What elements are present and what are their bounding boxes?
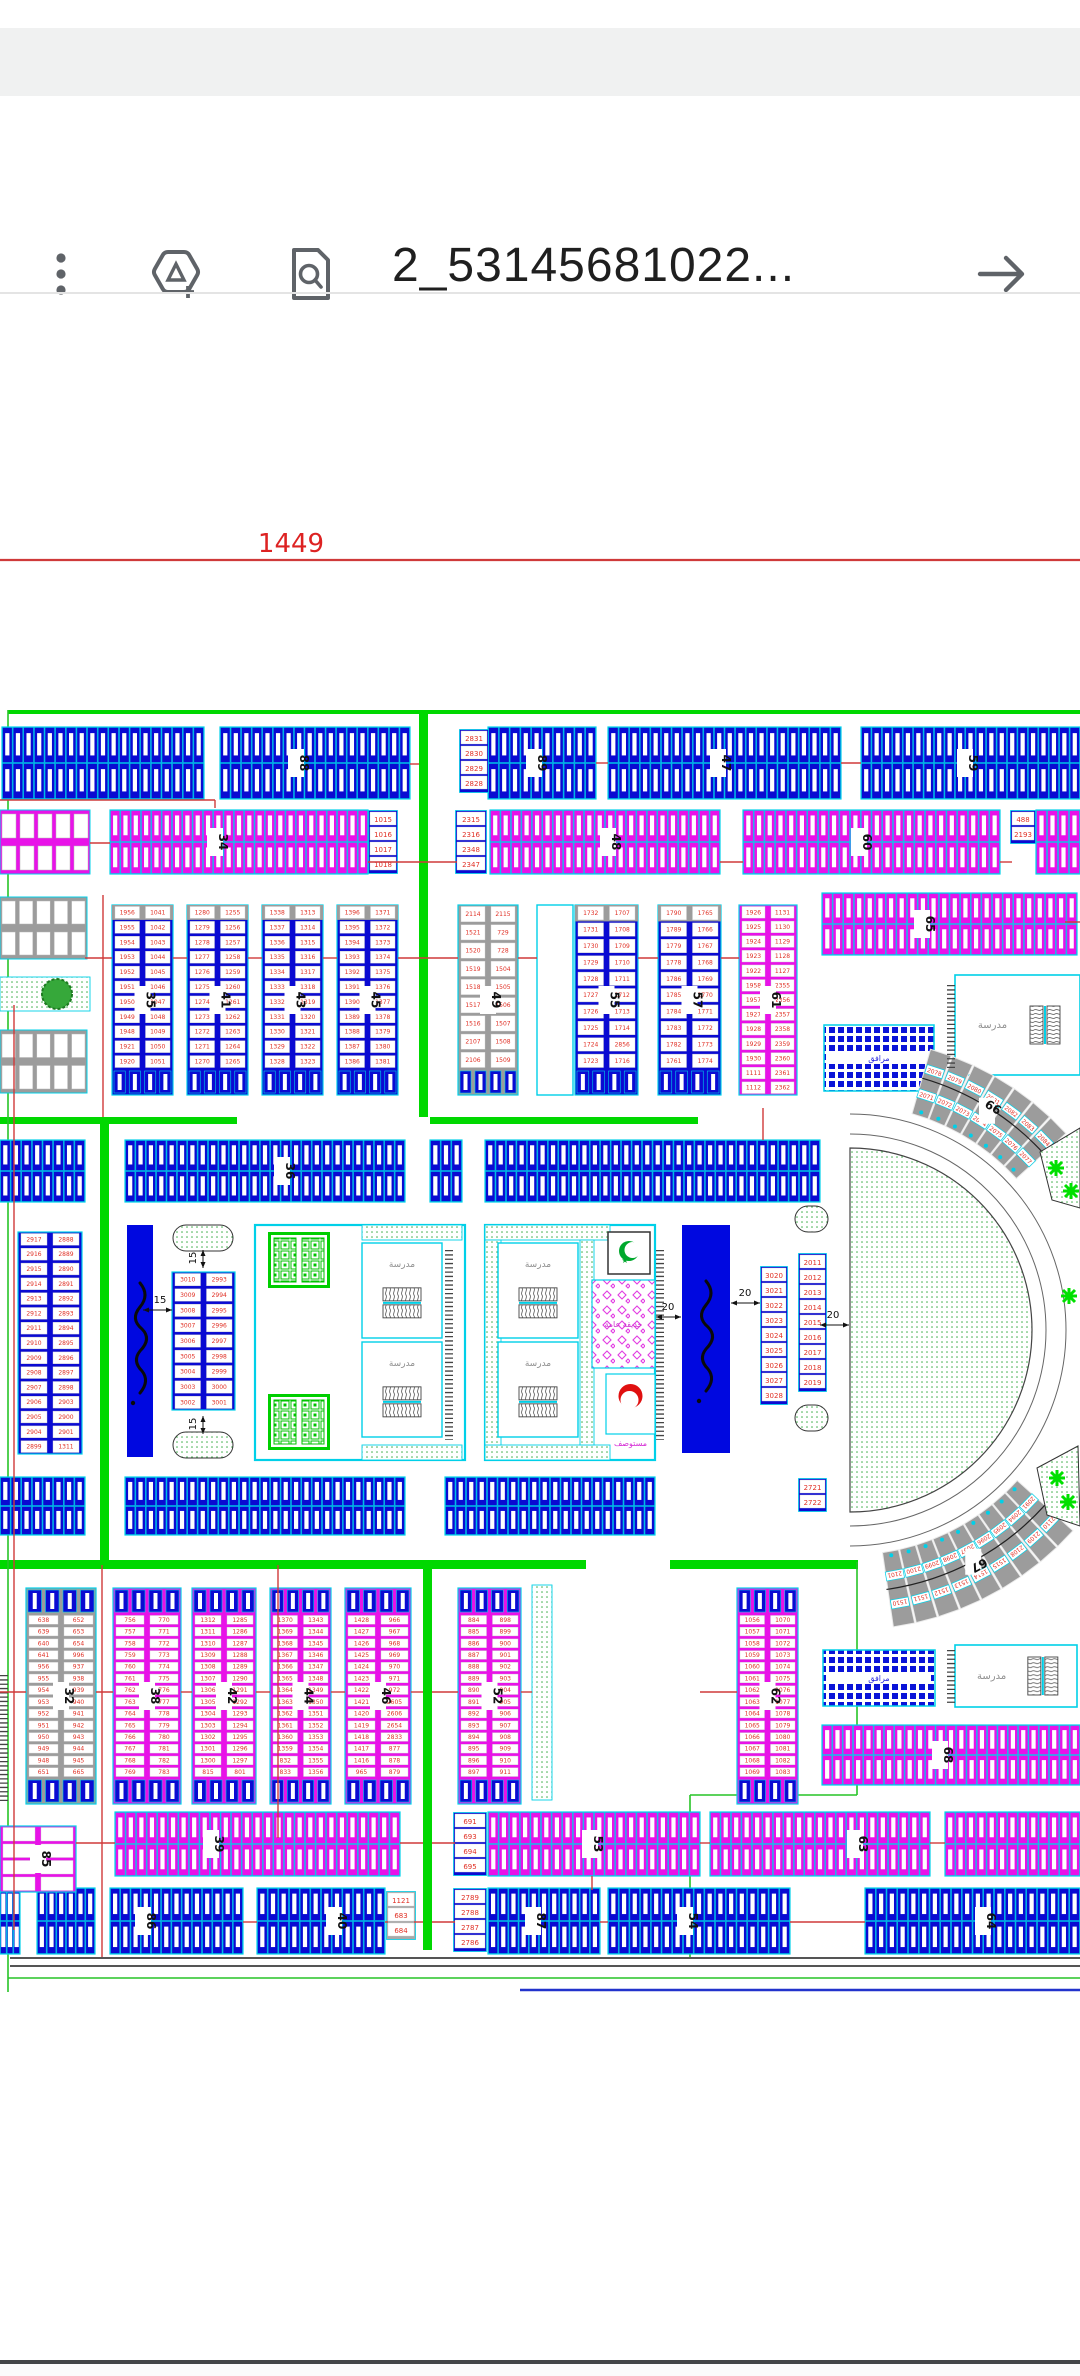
lot-tag xyxy=(535,847,539,867)
lot-tag xyxy=(870,1817,874,1837)
lot-tag xyxy=(287,1849,291,1869)
lot-tag xyxy=(185,1894,189,1914)
tile-column: 2315231623482347 xyxy=(456,811,487,874)
block-number: 53 xyxy=(591,1836,605,1853)
lot-tag xyxy=(384,1593,388,1609)
lot-number: 772 xyxy=(158,1640,170,1647)
lot-tag xyxy=(392,733,396,755)
lot-tag xyxy=(491,733,495,755)
lot-number: 1955 xyxy=(120,924,135,931)
lot-tag xyxy=(315,1145,319,1164)
lot-tag xyxy=(1062,769,1066,791)
lot-number: 1767 xyxy=(698,943,713,950)
plot-strip xyxy=(0,1477,85,1535)
lot-tag xyxy=(335,1511,339,1529)
lot-tag xyxy=(802,769,806,791)
lot-tag xyxy=(502,733,506,755)
lot-tag xyxy=(128,1145,132,1164)
lot-number: 1727 xyxy=(583,992,598,999)
plot-block: 8848988858998869008879018889028899038909… xyxy=(458,1588,521,1804)
lot-tag xyxy=(1073,1849,1077,1869)
plot-strip: 68 xyxy=(822,1725,1080,1785)
lot-tag xyxy=(1048,929,1052,948)
lot-tag xyxy=(154,1894,158,1914)
lot-tag xyxy=(308,1817,312,1837)
lot-number: 766 xyxy=(124,1734,136,1741)
lot-tag xyxy=(211,1176,215,1195)
lot-number: 1280 xyxy=(195,909,210,916)
lot-tag xyxy=(997,1927,1001,1947)
lot-number: 889 xyxy=(468,1675,480,1682)
lot-tag xyxy=(566,815,570,835)
lot-tag xyxy=(681,847,685,867)
lot-tag xyxy=(718,1894,722,1914)
lot-number: 967 xyxy=(389,1629,401,1636)
lot-tag xyxy=(572,1176,576,1195)
lot-tag xyxy=(969,1849,973,1869)
lot-number: 907 xyxy=(500,1722,512,1729)
lot-number: 1920 xyxy=(120,1059,135,1066)
lot-number: 2907 xyxy=(26,1384,41,1391)
lot-number: 1041 xyxy=(150,909,165,916)
lot-number: 1265 xyxy=(225,1059,240,1066)
lot-number: 1380 xyxy=(375,1044,390,1051)
lot-tag xyxy=(611,1927,615,1947)
lot-tag xyxy=(618,1849,622,1869)
lot-number: 1112 xyxy=(746,1085,761,1092)
lot-tag xyxy=(907,815,911,835)
school-block: مدرسة xyxy=(362,1243,442,1338)
lot-tag xyxy=(729,1894,733,1914)
lot-tag xyxy=(491,769,495,791)
lot-number: 895 xyxy=(468,1746,480,1753)
lot-number: 694 xyxy=(463,1848,477,1856)
lot-tag xyxy=(954,1927,958,1947)
lot-number: 1708 xyxy=(615,927,630,934)
lot-tag xyxy=(593,1894,597,1914)
lot-tag xyxy=(828,1817,832,1837)
lot-number: 971 xyxy=(389,1675,401,1682)
lot-number: 1929 xyxy=(746,1041,761,1048)
lot-tag xyxy=(1062,1760,1066,1779)
lot-tag xyxy=(1031,1760,1035,1779)
lot-tag xyxy=(750,1176,754,1195)
lot-number: 1425 xyxy=(354,1652,369,1659)
lot-number: 779 xyxy=(158,1722,170,1729)
lot-tag xyxy=(1,1927,5,1947)
lot-number: 2355 xyxy=(775,982,790,989)
lot-tag xyxy=(885,733,889,755)
lot-tag xyxy=(403,769,407,791)
rect xyxy=(383,1305,421,1318)
lot-tag xyxy=(398,1482,402,1500)
lot-tag xyxy=(889,929,893,948)
lot-tag xyxy=(223,1074,227,1090)
lot-tag xyxy=(877,1760,881,1779)
lot-tag xyxy=(308,1849,312,1869)
lot-tag xyxy=(258,847,262,867)
school-label: مدرسة xyxy=(525,1260,551,1270)
lot-number: 1313 xyxy=(300,909,315,916)
lot-tag xyxy=(990,1849,994,1869)
plot-block: 1056107010571071105810721059107310601074… xyxy=(737,1588,798,1804)
lot-number: 1371 xyxy=(375,909,390,916)
lot-number: 1395 xyxy=(345,924,360,931)
lot-tag xyxy=(1010,733,1014,755)
lot-number: 1286 xyxy=(232,1629,247,1636)
lot-tag xyxy=(464,1783,468,1799)
block-number: 38 xyxy=(148,1688,162,1705)
lot-tag xyxy=(556,769,560,791)
clinic-label: مستوصف xyxy=(614,1439,647,1448)
lot-tag xyxy=(963,929,967,948)
lot-number: 1773 xyxy=(698,1041,713,1048)
lot-tag xyxy=(1052,1817,1056,1837)
lot-number: 1343 xyxy=(308,1617,323,1624)
plot-strip xyxy=(2,727,204,799)
lot-number: 900 xyxy=(500,1640,512,1647)
lot-number: 1952 xyxy=(120,969,135,976)
lot-tag xyxy=(329,1849,333,1869)
lot-number: 1311 xyxy=(58,1444,73,1451)
utilities-block: مرافق xyxy=(824,1025,934,1091)
street-blue xyxy=(682,1225,730,1453)
lot-tag xyxy=(361,1849,365,1869)
lot-tag xyxy=(665,1927,669,1947)
lot-tag xyxy=(226,1927,230,1947)
green-street xyxy=(0,1560,586,1569)
lot-number: 943 xyxy=(73,1734,85,1741)
forward-button[interactable] xyxy=(970,242,1034,306)
lot-number: 1257 xyxy=(225,939,240,946)
curb-mark xyxy=(953,1124,957,1128)
lot-tag xyxy=(335,1482,339,1500)
lot-tag xyxy=(134,815,138,835)
lot-number: 2789 xyxy=(461,1894,479,1902)
lot-tag xyxy=(350,1817,354,1837)
lot-number: 1075 xyxy=(775,1675,790,1682)
lot-tag xyxy=(509,1176,513,1195)
lot-tag xyxy=(387,1176,391,1195)
lot-number: 1059 xyxy=(745,1652,760,1659)
lot-tag xyxy=(916,769,920,791)
lot-tag xyxy=(818,1849,822,1869)
lot-number: 1508 xyxy=(495,1039,510,1046)
lot-tag xyxy=(160,1817,164,1837)
lot-tag xyxy=(632,733,636,755)
lot-tag xyxy=(773,1783,777,1799)
curb-mark xyxy=(971,1521,975,1525)
lot-tag xyxy=(1073,1730,1077,1749)
lot-number: 2898 xyxy=(58,1384,73,1391)
lot-tag xyxy=(144,847,148,867)
lot-number: 1374 xyxy=(375,954,390,961)
lot-number: 1949 xyxy=(120,1014,135,1021)
lot-tag xyxy=(993,815,997,835)
lot-tag xyxy=(180,1176,184,1195)
lot-tag xyxy=(589,769,593,791)
lot-number: 1270 xyxy=(195,1059,210,1066)
lot-tag xyxy=(766,1849,770,1869)
lot-number: 1375 xyxy=(375,969,390,976)
lot-tag xyxy=(818,1817,822,1837)
lot-tag xyxy=(113,815,117,835)
lot-tag xyxy=(501,1511,505,1529)
lot-number: 1293 xyxy=(232,1711,247,1718)
lot-tag xyxy=(922,1894,926,1914)
lot-number: 729 xyxy=(497,929,509,936)
lot-tag xyxy=(128,1176,132,1195)
lot-tag xyxy=(3,1511,7,1529)
lot-tag xyxy=(875,733,879,755)
lot-tag xyxy=(776,1817,780,1837)
tile-column: 302030213022302330243025302630273028 xyxy=(761,1267,788,1405)
lot-number: 651 xyxy=(38,1769,50,1776)
lot-tag xyxy=(639,847,643,867)
dotted-green-band xyxy=(532,1585,552,1800)
lot-tag xyxy=(792,1145,796,1164)
lot-tag xyxy=(734,1849,738,1869)
lot-tag xyxy=(40,1927,44,1947)
lot-tag xyxy=(791,733,795,755)
lot-number: 1427 xyxy=(354,1629,369,1636)
school-building-symbol xyxy=(383,1288,421,1318)
lot-tag xyxy=(628,1074,632,1090)
lot-tag xyxy=(190,1145,194,1164)
lot-number: 1766 xyxy=(698,927,713,934)
lot-number: 3027 xyxy=(765,1377,783,1385)
lot-tag xyxy=(1000,1817,1004,1837)
lot-tag xyxy=(632,769,636,791)
lot-number: 1419 xyxy=(354,1722,369,1729)
lot-tag xyxy=(512,1817,516,1837)
lot-tag xyxy=(266,1817,270,1837)
stadium-green xyxy=(795,1206,828,1232)
lot-tag xyxy=(778,847,782,867)
lot-tag xyxy=(122,733,126,755)
dimension-label: 20 xyxy=(731,1288,760,1306)
lot-number: 2999 xyxy=(212,1369,227,1376)
lot-number: 2013 xyxy=(804,1289,822,1297)
lot-tag xyxy=(154,733,158,755)
lot-tag xyxy=(532,1511,536,1529)
lot-tag xyxy=(958,1817,962,1837)
lot-number: 1128 xyxy=(775,953,790,960)
lot-tag xyxy=(504,847,508,867)
lot-number: 2012 xyxy=(804,1274,822,1282)
lot-tag xyxy=(514,847,518,867)
lot-tag xyxy=(226,1894,230,1914)
lot-tag xyxy=(530,1176,534,1195)
lot-number: 3026 xyxy=(765,1362,783,1370)
more-options-button[interactable] xyxy=(29,242,93,306)
lot-tag xyxy=(268,1074,272,1090)
lot-tag xyxy=(232,1176,236,1195)
sports-courts xyxy=(268,1394,330,1450)
lot-tag xyxy=(494,1074,498,1090)
lot-tag xyxy=(392,769,396,791)
lot-number: 781 xyxy=(158,1746,170,1753)
lot-number: 1707 xyxy=(615,910,630,917)
lot-tag xyxy=(1027,898,1031,917)
lot-tag xyxy=(786,1849,790,1869)
lot-tag xyxy=(350,733,354,755)
lot-number: 1131 xyxy=(775,909,790,916)
lot-tag xyxy=(308,733,312,755)
lot-number: 2901 xyxy=(58,1429,73,1436)
stadium-green xyxy=(795,1405,828,1431)
lot-tag xyxy=(708,1927,712,1947)
lot-tag xyxy=(562,1927,566,1947)
lot-tag xyxy=(743,1783,747,1799)
lot-tag xyxy=(283,1074,287,1090)
add-shortcut-button[interactable] xyxy=(144,242,208,306)
lot-tag xyxy=(980,1760,984,1779)
plot-block: 6386526396536406546419969569379559389549… xyxy=(26,1588,96,1804)
lot-tag xyxy=(890,1894,894,1914)
lot-number: 2891 xyxy=(58,1281,73,1288)
lot-number: 3010 xyxy=(180,1277,195,1284)
lot-number: 1069 xyxy=(745,1769,760,1776)
lot-tag xyxy=(56,846,70,870)
lot-tag xyxy=(624,1176,628,1195)
lot-tag xyxy=(289,815,293,835)
lot-number: 942 xyxy=(73,1722,85,1729)
lot-tag xyxy=(812,733,816,755)
lot-tag xyxy=(294,1511,298,1529)
lot-number: 1312 xyxy=(200,1617,215,1624)
lot-number: 1256 xyxy=(225,924,240,931)
rect xyxy=(955,975,1080,1075)
lot-tag xyxy=(971,847,975,867)
lot-tag xyxy=(564,1482,568,1500)
lot-number: 1078 xyxy=(775,1711,790,1718)
lot-tag xyxy=(480,1482,484,1500)
lot-tag xyxy=(182,1849,186,1869)
lot-tag xyxy=(791,769,795,791)
lot-tag xyxy=(942,898,946,917)
lot-tag xyxy=(459,1482,463,1500)
lot-tag xyxy=(897,1730,901,1749)
pdf-page-canvas[interactable]: 1449888947593448606536683953638640875464… xyxy=(0,0,1080,2376)
lot-tag xyxy=(960,815,964,835)
lot-tag xyxy=(192,1817,196,1837)
lot-number: 2828 xyxy=(465,780,483,788)
lot-tag xyxy=(346,1145,350,1164)
lot-tag xyxy=(318,733,322,755)
lot-tag xyxy=(511,1783,515,1799)
lot-tag xyxy=(499,1176,503,1195)
lot-number: 892 xyxy=(468,1711,480,1718)
stadium-green xyxy=(173,1432,233,1458)
lot-tag xyxy=(866,1760,870,1779)
lot-tag xyxy=(221,1176,225,1195)
lot-tag xyxy=(201,1145,205,1164)
lot-tag xyxy=(912,1849,916,1869)
lot-number: 2787 xyxy=(461,1924,479,1932)
lot-tag xyxy=(556,847,560,867)
find-in-page-button[interactable] xyxy=(278,242,342,306)
block-number: 64 xyxy=(984,1913,998,1930)
lot-tag xyxy=(534,1817,538,1837)
lot-number: 2348 xyxy=(462,846,480,854)
lot-number: 1723 xyxy=(583,1058,598,1065)
lot-tag xyxy=(834,769,838,791)
lot-number: 1761 xyxy=(666,1058,681,1065)
lot-number: 1336 xyxy=(270,939,285,946)
dotted-green-band xyxy=(362,1225,462,1240)
lot-number: 652 xyxy=(73,1617,85,1624)
lot-tag xyxy=(247,815,251,835)
lot-tag xyxy=(35,1145,39,1164)
lot-tag xyxy=(629,815,633,835)
lot-number: 938 xyxy=(73,1675,85,1682)
lot-tag xyxy=(875,847,879,867)
lot-number: 1346 xyxy=(308,1652,323,1659)
lot-tag xyxy=(24,1176,28,1195)
lot-tag xyxy=(511,1894,515,1914)
lot-number: 1420 xyxy=(354,1711,369,1718)
lot-number: 1356 xyxy=(308,1769,323,1776)
tile-column: 1121683684 xyxy=(387,1892,416,1940)
lot-number: 763 xyxy=(124,1699,136,1706)
lot-tag xyxy=(1072,815,1076,835)
lot-tag xyxy=(186,769,190,791)
lot-tag xyxy=(368,1783,372,1799)
lot-tag xyxy=(823,733,827,755)
lot-tag xyxy=(387,1145,391,1164)
lot-tag xyxy=(807,1849,811,1869)
lot-number: 2721 xyxy=(804,1484,822,1492)
lot-tag xyxy=(16,769,20,791)
lot-tag xyxy=(900,898,904,917)
lot-number: 1714 xyxy=(615,1025,630,1032)
lot-tag xyxy=(190,1482,194,1500)
lot-tag xyxy=(572,1894,576,1914)
lot-tag xyxy=(491,1927,495,1947)
lot-tag xyxy=(622,1894,626,1914)
lot-tag xyxy=(990,1817,994,1837)
lot-tag xyxy=(277,1849,281,1869)
mosque: ★ xyxy=(608,1232,650,1274)
plot-block: 2114211515217291520728151915041518150515… xyxy=(458,905,518,1095)
lot-number: 1129 xyxy=(775,939,790,946)
lot-tag xyxy=(593,1176,597,1195)
lot-tag xyxy=(661,1817,665,1837)
lot-number: 903 xyxy=(500,1675,512,1682)
lot-number: 3025 xyxy=(765,1347,783,1355)
lot-tag xyxy=(150,1849,154,1869)
lot-number: 767 xyxy=(124,1746,136,1753)
lot-number: 1275 xyxy=(195,984,210,991)
lot-tag xyxy=(650,815,654,835)
lot-number: 948 xyxy=(38,1757,50,1764)
lot-number: 488 xyxy=(1016,816,1029,824)
block-number: 62 xyxy=(769,1688,783,1705)
lot-tag xyxy=(970,1760,974,1779)
green-street xyxy=(100,1124,109,1562)
block-number: 85 xyxy=(39,1851,53,1868)
lot-tag xyxy=(839,1817,843,1837)
lot-tag xyxy=(69,1894,73,1914)
lot-tag xyxy=(1008,1894,1012,1914)
lot-tag xyxy=(265,733,269,755)
lot-tag xyxy=(772,1927,776,1947)
block-number: 61 xyxy=(769,992,783,1009)
lot-tag xyxy=(299,815,303,835)
lot-tag xyxy=(540,1176,544,1195)
tile-column: 27212722 xyxy=(799,1479,827,1512)
